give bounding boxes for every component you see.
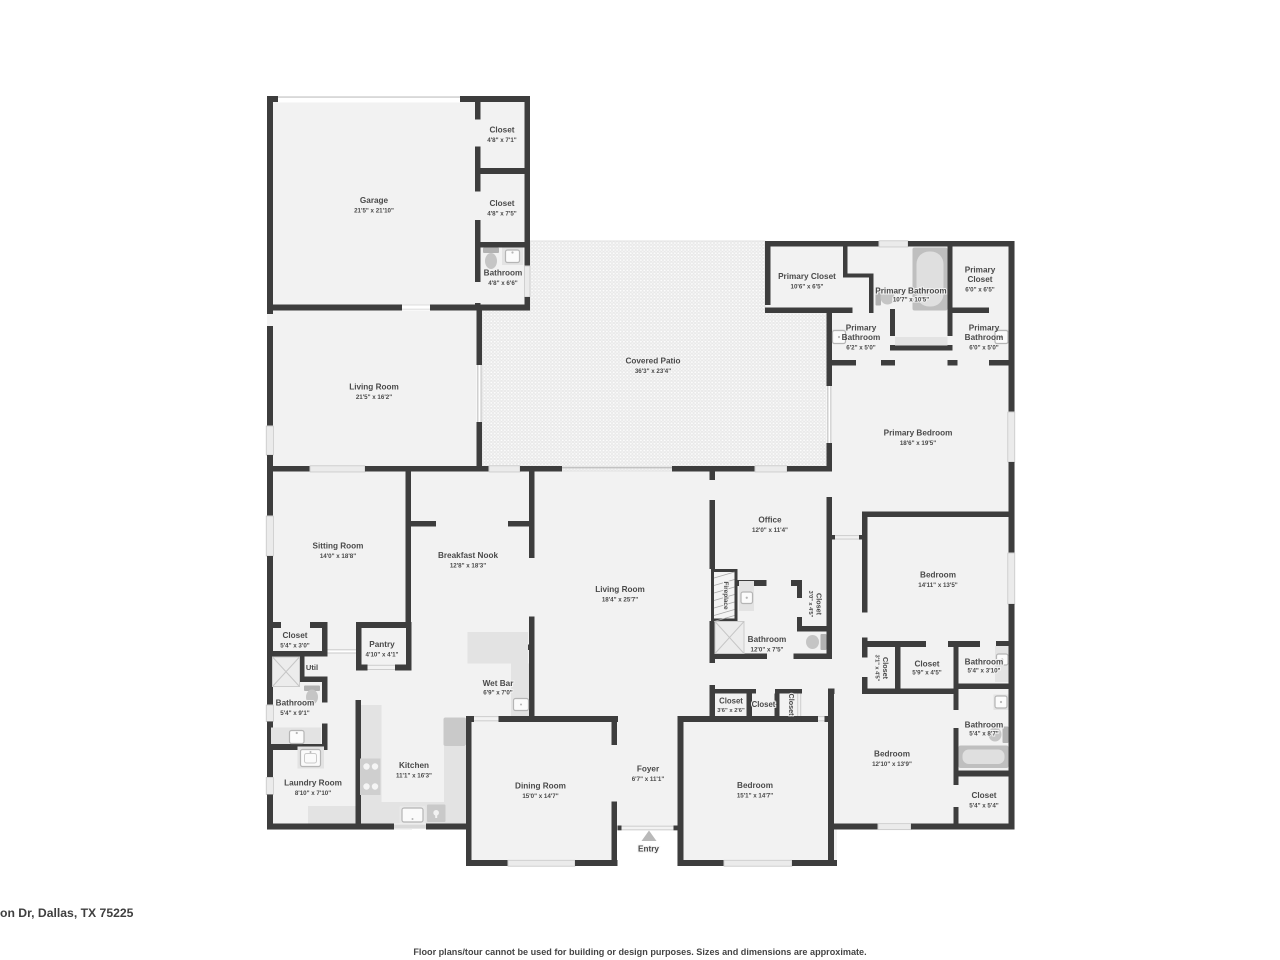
svg-text:6'0" x 5'0": 6'0" x 5'0" — [969, 345, 999, 352]
svg-text:6'2" x 5'0": 6'2" x 5'0" — [846, 345, 876, 352]
svg-text:Bathroom: Bathroom — [965, 333, 1004, 342]
svg-text:3'0" x 4'5": 3'0" x 4'5" — [807, 591, 813, 618]
svg-text:Dining Room: Dining Room — [515, 782, 566, 791]
svg-text:Bathroom: Bathroom — [842, 333, 881, 342]
svg-text:Closet: Closet — [489, 126, 514, 135]
svg-text:Closet: Closet — [815, 593, 824, 616]
svg-text:Office: Office — [758, 516, 782, 525]
svg-text:Laundry Room: Laundry Room — [284, 779, 342, 788]
svg-text:21'5" x 16'2": 21'5" x 16'2" — [356, 394, 392, 401]
svg-text:4'8" x 7'5": 4'8" x 7'5" — [487, 210, 517, 217]
svg-text:Util: Util — [306, 663, 318, 672]
svg-text:Bedroom: Bedroom — [920, 571, 956, 580]
svg-text:12'0" x 7'5": 12'0" x 7'5" — [751, 646, 784, 653]
svg-text:Fireplace: Fireplace — [722, 581, 729, 610]
svg-text:18'6" x 19'5": 18'6" x 19'5" — [900, 440, 936, 447]
svg-text:12'8" x 18'3": 12'8" x 18'3" — [450, 562, 486, 569]
svg-text:15'1" x 14'7": 15'1" x 14'7" — [737, 792, 773, 799]
svg-text:Bedroom: Bedroom — [737, 781, 773, 790]
svg-text:3'1" x 4'5": 3'1" x 4'5" — [874, 655, 880, 682]
svg-text:Primary Bedroom: Primary Bedroom — [884, 429, 953, 438]
svg-text:Closet: Closet — [282, 631, 307, 640]
svg-text:Pantry: Pantry — [369, 640, 395, 649]
svg-text:Closet: Closet — [881, 657, 890, 680]
svg-text:Bathroom: Bathroom — [276, 699, 315, 708]
svg-text:Bathroom: Bathroom — [965, 658, 1004, 667]
svg-text:Primary Bathroom: Primary Bathroom — [875, 287, 946, 296]
svg-text:Foyer: Foyer — [637, 765, 660, 774]
svg-text:15'0" x 14'7": 15'0" x 14'7" — [522, 793, 558, 800]
svg-text:5'9" x 4'5": 5'9" x 4'5" — [912, 670, 942, 677]
svg-text:Closet: Closet — [489, 199, 514, 208]
svg-text:Closet: Closet — [914, 660, 939, 669]
svg-text:4'8" x 6'6": 4'8" x 6'6" — [488, 280, 518, 287]
svg-text:12'0" x 11'4": 12'0" x 11'4" — [752, 527, 788, 534]
svg-text:21'5" x 21'10": 21'5" x 21'10" — [354, 207, 394, 214]
svg-text:8'10" x 7'10": 8'10" x 7'10" — [295, 790, 331, 797]
svg-text:11'1" x 16'3": 11'1" x 16'3" — [396, 772, 432, 779]
svg-text:Primary: Primary — [969, 324, 1000, 333]
svg-text:Bathroom: Bathroom — [965, 721, 1004, 730]
svg-text:Sitting Room: Sitting Room — [313, 542, 364, 551]
svg-text:Closet: Closet — [752, 700, 776, 709]
svg-text:36'3" x 23'4": 36'3" x 23'4" — [635, 368, 671, 375]
svg-text:Closet: Closet — [787, 694, 796, 717]
svg-text:Living Room: Living Room — [595, 585, 645, 594]
svg-text:6'9" x 7'0": 6'9" x 7'0" — [483, 690, 513, 697]
svg-text:Garage: Garage — [360, 196, 389, 205]
svg-text:5'4" x 3'10": 5'4" x 3'10" — [968, 668, 1001, 675]
svg-text:Closet: Closet — [971, 791, 996, 800]
svg-text:6'0" x 6'5": 6'0" x 6'5" — [965, 287, 995, 294]
svg-text:6'7" x 11'1": 6'7" x 11'1" — [632, 776, 665, 783]
svg-text:14'11" x 13'5": 14'11" x 13'5" — [918, 582, 958, 589]
svg-text:5'4" x 8'7": 5'4" x 8'7" — [969, 731, 999, 738]
svg-text:Wet Bar: Wet Bar — [483, 679, 515, 688]
svg-text:Bedroom: Bedroom — [874, 750, 910, 759]
svg-text:12'10" x 13'9": 12'10" x 13'9" — [872, 761, 912, 768]
svg-text:18'4" x 25'7": 18'4" x 25'7" — [602, 596, 638, 603]
svg-text:Bathroom: Bathroom — [484, 269, 523, 278]
svg-text:5'4" x 5'4": 5'4" x 5'4" — [969, 802, 999, 809]
svg-text:10'7" x 10'5": 10'7" x 10'5" — [893, 297, 929, 304]
svg-text:Covered Patio: Covered Patio — [625, 357, 680, 366]
svg-text:Living Room: Living Room — [349, 383, 399, 392]
svg-text:Entry: Entry — [638, 845, 659, 854]
svg-text:3'6" x 2'6": 3'6" x 2'6" — [717, 708, 745, 714]
svg-text:Bathroom: Bathroom — [748, 635, 787, 644]
svg-text:Primary Closet: Primary Closet — [778, 272, 836, 281]
svg-text:4'10" x 4'1": 4'10" x 4'1" — [366, 651, 399, 658]
svg-text:5'4" x 3'0": 5'4" x 3'0" — [280, 642, 310, 649]
svg-text:4'8" x 7'1": 4'8" x 7'1" — [487, 137, 517, 144]
svg-text:Kitchen: Kitchen — [399, 761, 429, 770]
svg-text:Closet: Closet — [967, 275, 992, 284]
svg-text:Closet: Closet — [719, 697, 743, 706]
svg-text:Primary: Primary — [965, 266, 996, 275]
svg-text:14'0" x 18'8": 14'0" x 18'8" — [320, 553, 356, 560]
svg-text:Primary: Primary — [846, 324, 877, 333]
svg-text:5'4" x 9'1": 5'4" x 9'1" — [280, 710, 310, 717]
svg-text:Breakfast Nook: Breakfast Nook — [438, 551, 499, 560]
svg-text:10'6" x 6'5": 10'6" x 6'5" — [791, 283, 824, 290]
